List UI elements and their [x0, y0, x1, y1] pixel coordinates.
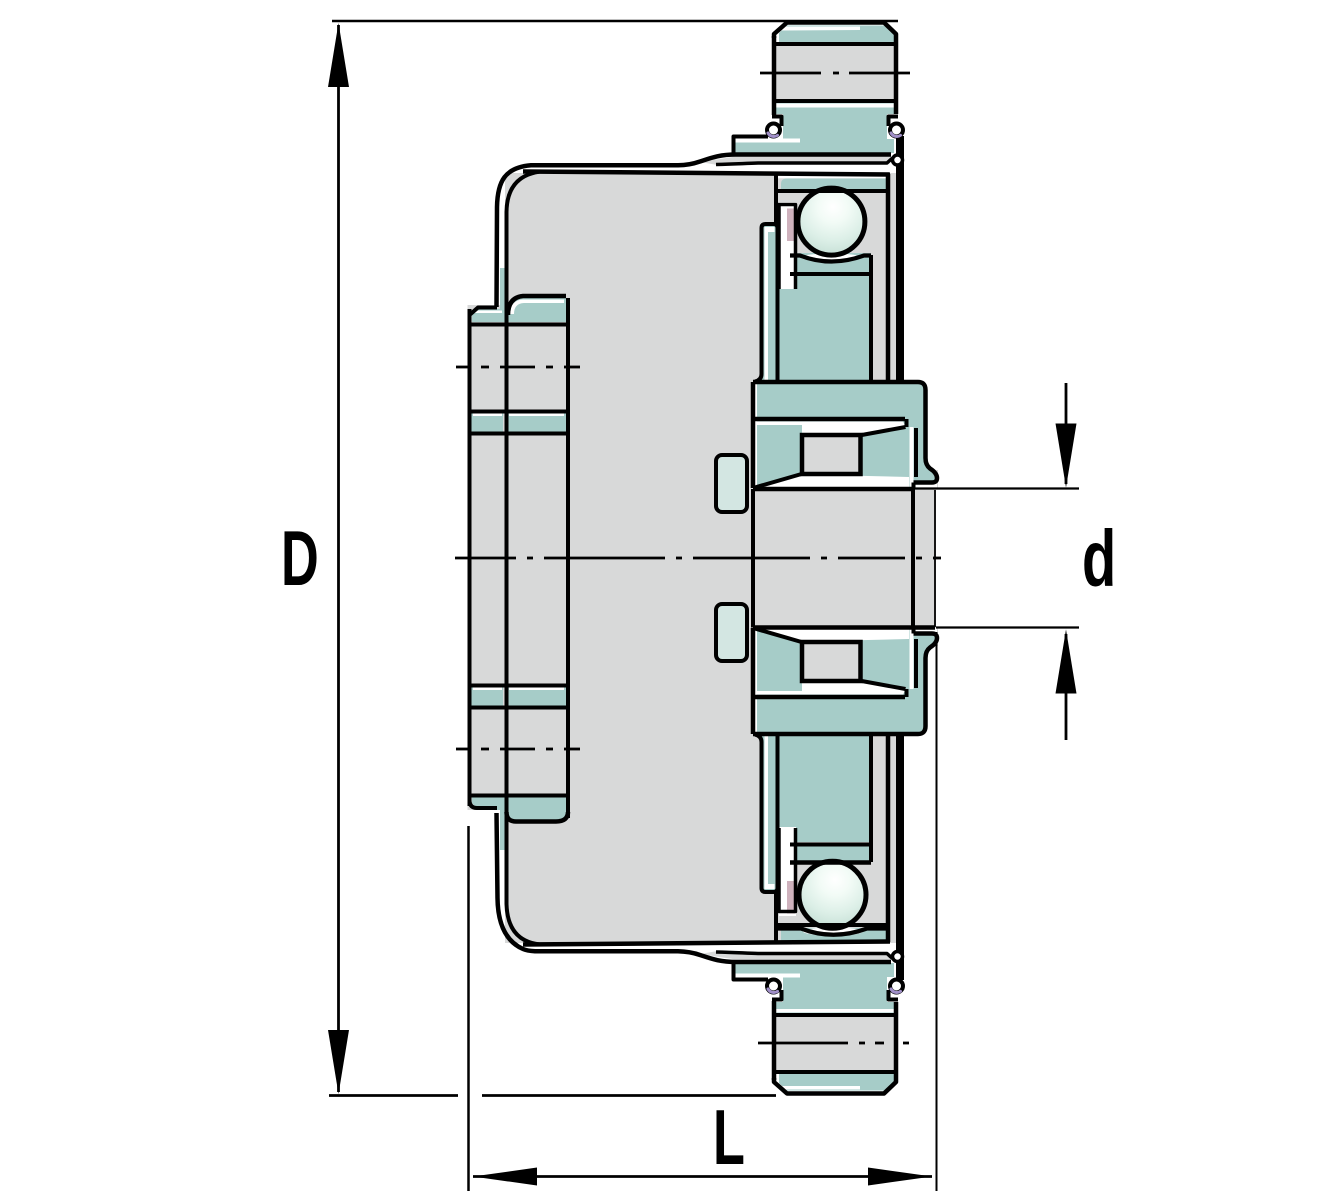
svg-text:d: d [1082, 513, 1116, 603]
svg-text:L: L [713, 1095, 745, 1182]
svg-text:D: D [281, 516, 319, 603]
